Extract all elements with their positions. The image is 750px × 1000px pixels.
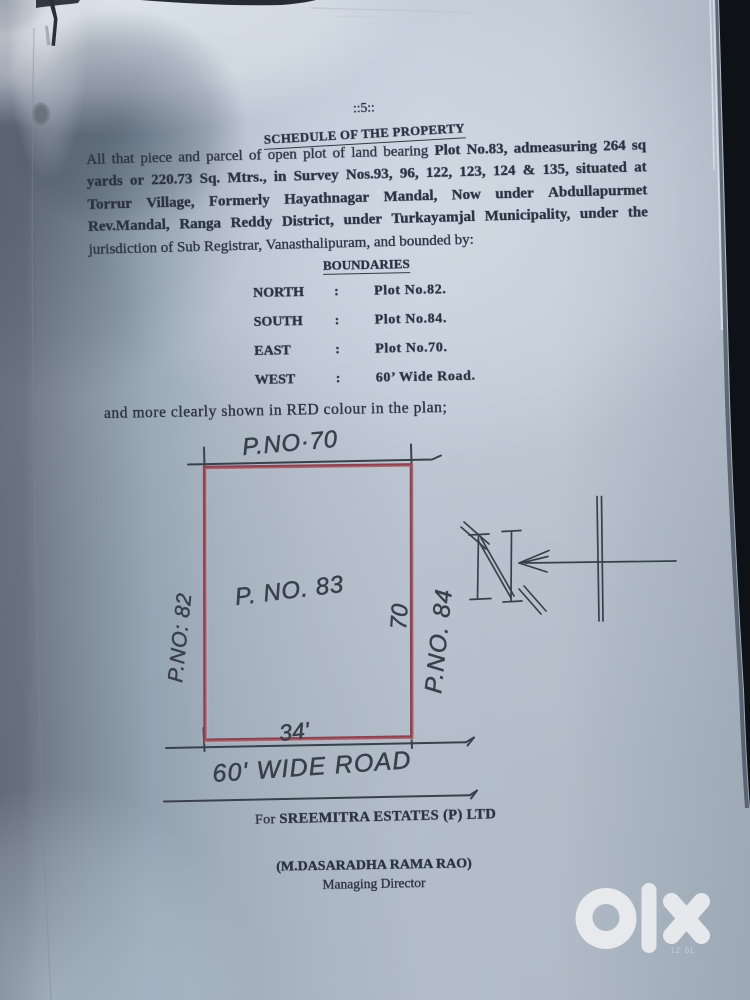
svg-text:60' WIDE ROAD: 60' WIDE ROAD bbox=[211, 746, 412, 788]
svg-text:34': 34' bbox=[278, 717, 312, 746]
svg-text:P. NO. 83: P. NO. 83 bbox=[233, 571, 345, 611]
svg-text:P.NO: 82: P.NO: 82 bbox=[164, 592, 196, 684]
svg-text:70: 70 bbox=[385, 603, 413, 631]
svg-text:12 6L: 12 6L bbox=[670, 946, 696, 955]
svg-text:P.NO. 84: P.NO. 84 bbox=[420, 587, 458, 694]
svg-text:P.NO·70: P.NO·70 bbox=[241, 426, 339, 461]
